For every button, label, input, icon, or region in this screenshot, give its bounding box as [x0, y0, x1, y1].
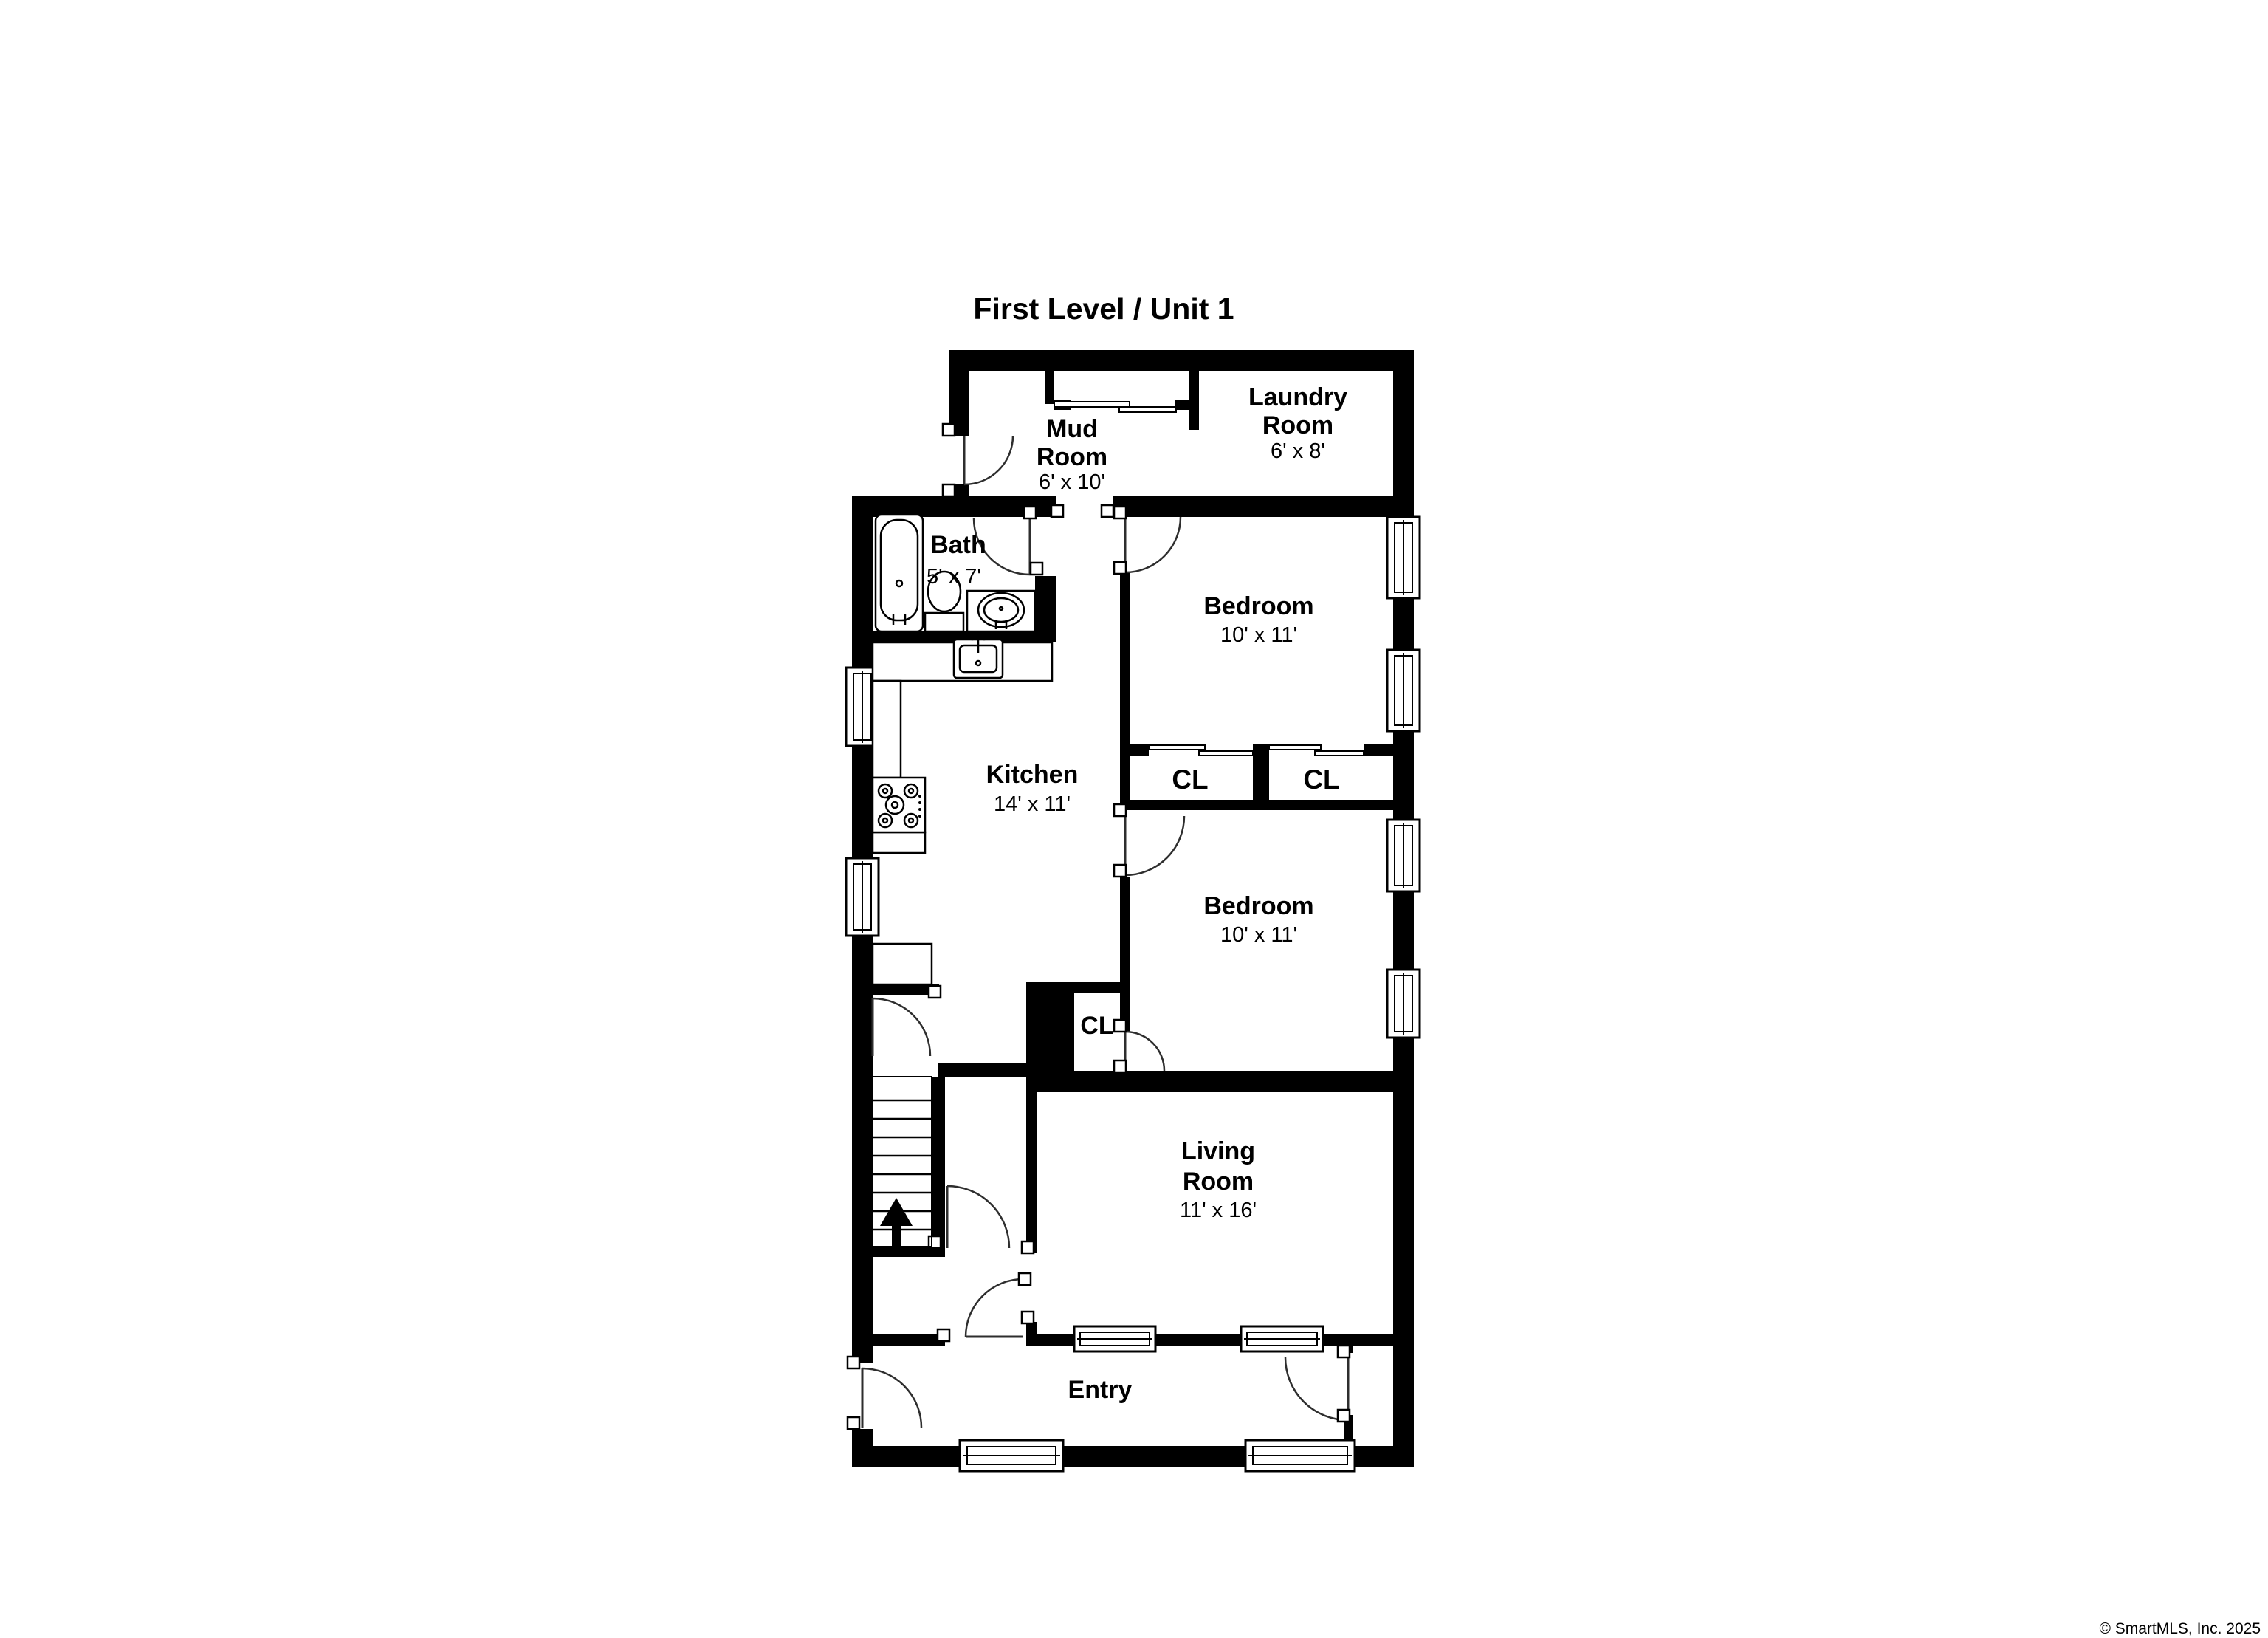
mud-room-label: Room	[1037, 443, 1107, 471]
laundry-room-dimensions: 6' x 8'	[1271, 439, 1325, 463]
door-closet-hall	[1114, 1020, 1164, 1072]
kitchen-label: Kitchen	[986, 761, 1079, 789]
sliding-door-panel	[1054, 402, 1130, 407]
laundry-room-label: Room	[1262, 411, 1333, 439]
bath-dimensions: 5' x 7'	[927, 565, 981, 589]
door-kitchen-hall	[873, 986, 941, 1056]
window-entry-bottom-1	[960, 1440, 1063, 1471]
door-entry-east	[1285, 1346, 1350, 1422]
living-room-dimensions: 11' x 16'	[1180, 1199, 1257, 1222]
door-bedroom-middle	[1114, 804, 1184, 877]
sliding-door-panel	[1315, 751, 1364, 755]
sliding-door-panel	[1269, 745, 1321, 750]
living-room-label: Room	[1183, 1168, 1254, 1196]
sliding-door-panel	[1119, 407, 1176, 412]
door-entry-exterior	[848, 1357, 921, 1429]
bathtub-icon	[876, 515, 923, 631]
hall-opening-jamb	[1102, 505, 1113, 517]
hall-opening-jamb	[1051, 505, 1063, 517]
bedroom-top-dimensions: 10' x 11'	[1220, 623, 1297, 647]
stove-icon	[873, 778, 925, 832]
mud-room-dimensions: 6' x 10'	[1039, 470, 1105, 494]
walls	[852, 350, 1414, 1467]
bath-label: Bath	[930, 531, 986, 559]
mud-room-label: Mud	[1046, 415, 1098, 443]
window-right-bedroom-top-1	[1387, 517, 1420, 598]
sliding-door-panel	[1149, 745, 1205, 750]
window-right-bedroom-middle-1	[1387, 820, 1420, 891]
living-room-label: Living	[1181, 1137, 1255, 1165]
closet-top-left-label: CL	[1172, 764, 1208, 795]
bedroom-middle-dimensions: 10' x 11'	[1220, 923, 1297, 947]
living-doorway-jamb	[1022, 1241, 1034, 1253]
window-right-bedroom-top-2	[1387, 650, 1420, 731]
bathroom-sink-icon	[967, 591, 1035, 631]
bedroom-middle-label: Bedroom	[1203, 892, 1313, 920]
fixtures	[873, 515, 1052, 1257]
refrigerator-icon	[873, 944, 932, 984]
closet-top-right-label: CL	[1303, 764, 1339, 795]
floor-plan: First Level / Unit 1 Mud Room 6' x 10' L…	[0, 0, 2268, 1638]
door-hall-entry	[938, 1273, 1031, 1341]
laundry-room-label: Laundry	[1248, 383, 1347, 411]
closet-hall-label: CL	[1080, 1012, 1113, 1040]
window-left-kitchen-2	[846, 858, 879, 936]
window-right-bedroom-middle-2	[1387, 970, 1420, 1038]
room-labels: First Level / Unit 1 Mud Room 6' x 10' L…	[927, 292, 1347, 1404]
door-mud-room-exterior	[943, 424, 1013, 496]
bedroom-top-label: Bedroom	[1203, 592, 1313, 620]
entry-label: Entry	[1068, 1376, 1133, 1404]
page-title: First Level / Unit 1	[973, 292, 1234, 326]
sliding-door-panel	[1199, 751, 1253, 755]
kitchen-dimensions: 14' x 11'	[994, 792, 1071, 816]
kitchen-sink-icon	[954, 634, 1003, 678]
window-living-entry-2	[1241, 1326, 1323, 1351]
window-living-entry-1	[1074, 1326, 1155, 1351]
window-entry-bottom-2	[1245, 1440, 1355, 1471]
living-doorway-jamb	[1022, 1312, 1034, 1323]
watermark: © SmartMLS, Inc. 2025	[2099, 1620, 2261, 1637]
windows	[846, 402, 1420, 1471]
